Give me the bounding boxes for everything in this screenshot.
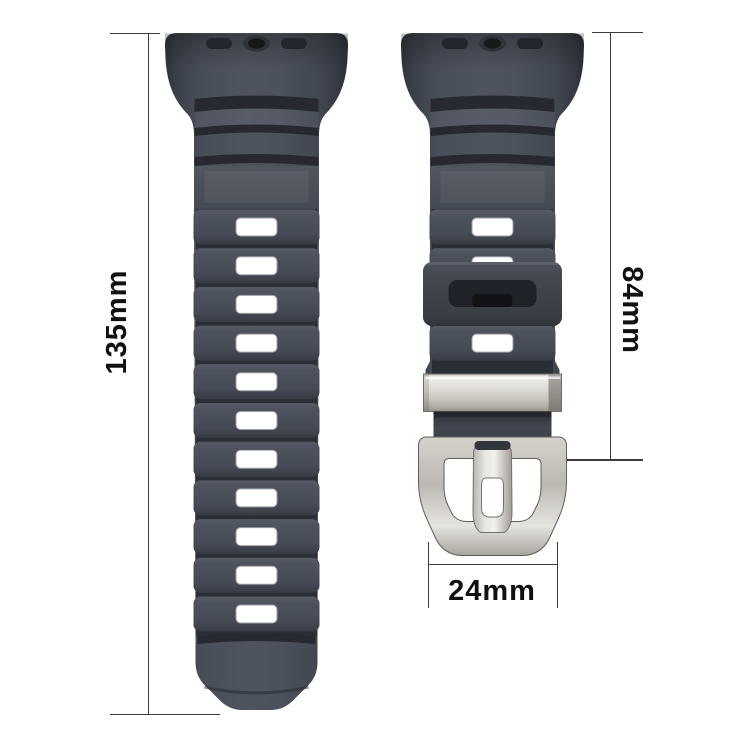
strap-link <box>194 480 320 515</box>
strap-link <box>194 210 320 245</box>
dimension-tick <box>110 714 220 716</box>
strap-link <box>194 326 320 361</box>
short-strap <box>401 33 584 556</box>
strap-link <box>194 248 320 283</box>
strap-link <box>430 326 556 361</box>
long-strap-links <box>194 210 320 632</box>
strap-link <box>194 287 320 322</box>
strap-link <box>194 442 320 477</box>
dimension-tick <box>592 32 643 34</box>
dimension-line-band-width <box>428 564 557 566</box>
strap-lip-over-tang <box>475 441 511 450</box>
band-width-label: 24mm <box>427 576 557 606</box>
dimension-line-short-strap <box>610 32 612 460</box>
strap-link <box>194 403 320 438</box>
dimension-line-long-strap <box>148 33 150 714</box>
dimension-tick <box>110 33 160 35</box>
short-strap-length-label: 84mm <box>617 250 647 370</box>
rubber-keeper-loop <box>423 262 562 326</box>
strap-link <box>194 519 320 554</box>
buckle-tang <box>473 446 512 533</box>
strap-link <box>194 597 320 632</box>
strap-link <box>194 558 320 593</box>
dimension-tick <box>567 459 643 461</box>
strap-link <box>194 364 320 399</box>
strap-link <box>430 210 556 245</box>
long-strap-length-label: 135mm <box>102 252 132 392</box>
metal-keeper-bar <box>424 374 562 412</box>
watch-band-size-diagram: 135mm 84mm 24mm <box>0 0 750 750</box>
long-strap <box>165 33 348 710</box>
